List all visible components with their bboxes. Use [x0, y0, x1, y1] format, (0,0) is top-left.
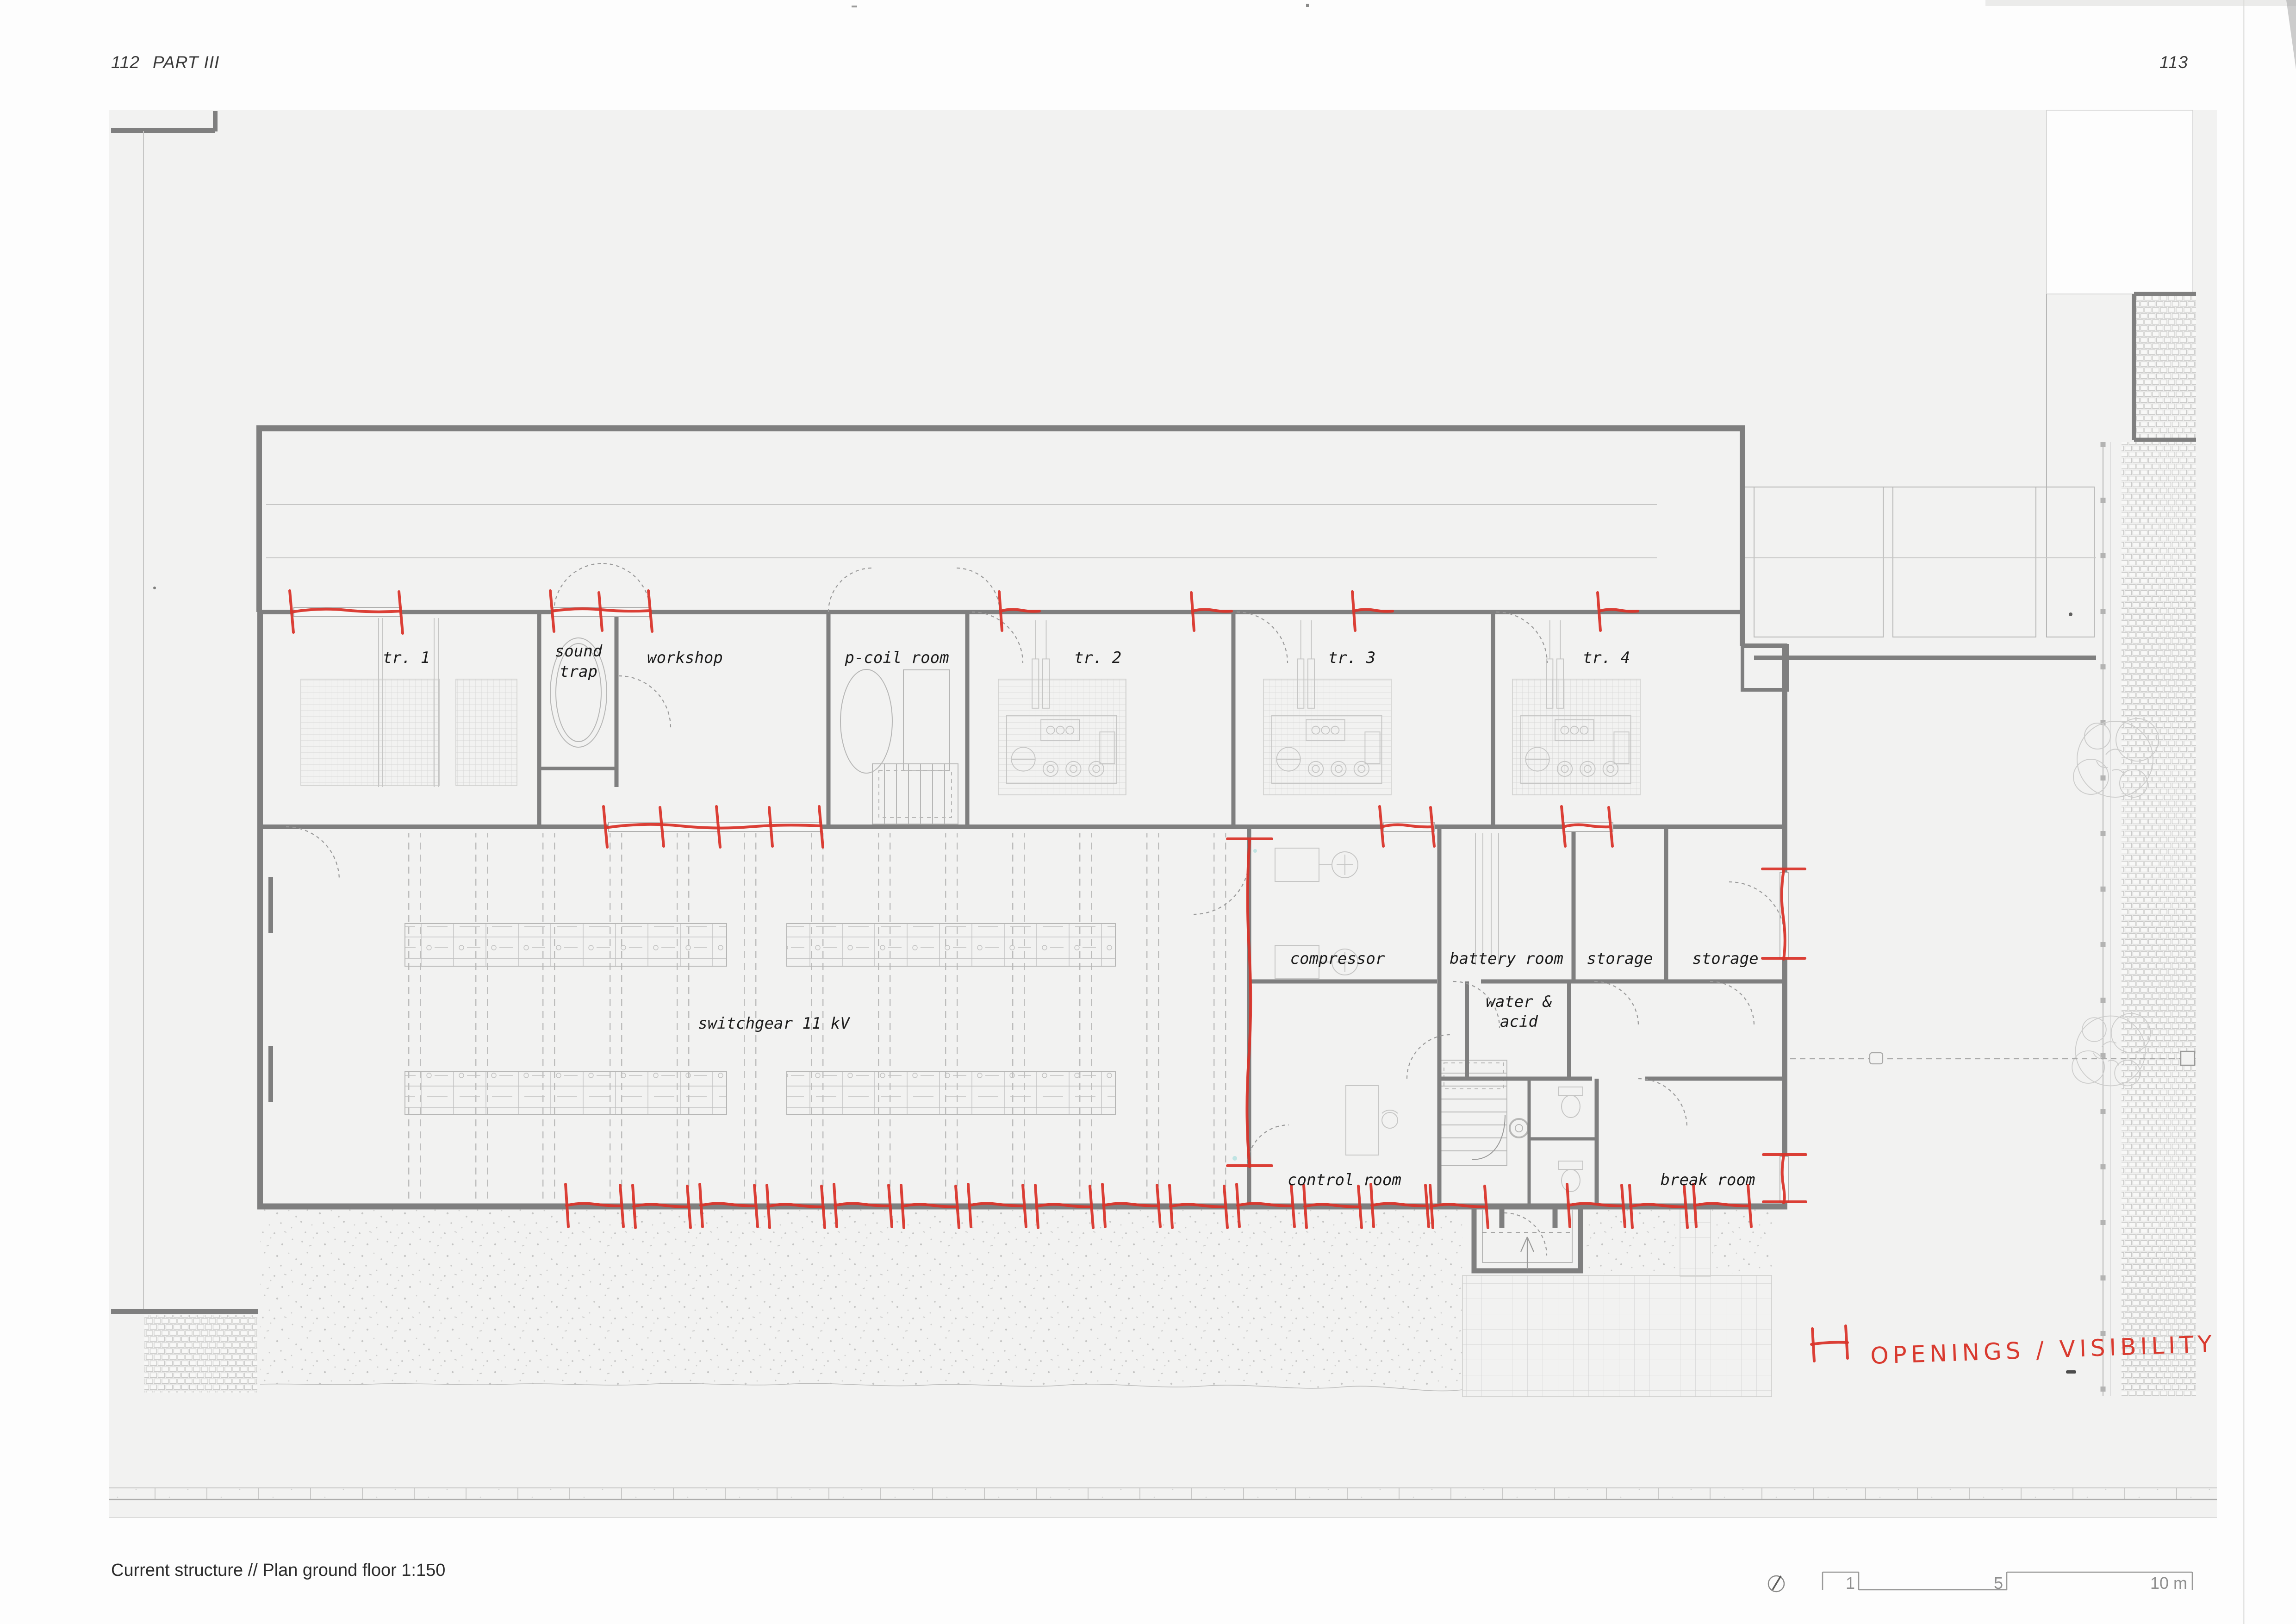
- room-label-workshop: workshop: [647, 649, 723, 667]
- room-label-sound-trap-2: trap: [560, 662, 597, 681]
- paving-top-right: [2134, 294, 2196, 440]
- ink-speck: [153, 587, 156, 589]
- gravel-patch: [1712, 1209, 1772, 1274]
- ink-speck: [2066, 1370, 2076, 1374]
- folio-right: 113: [2159, 53, 2188, 72]
- room-label-control: control room: [1288, 1171, 1401, 1189]
- scan-shadow: [1985, 0, 2296, 6]
- scale-bar: [1823, 1572, 2192, 1590]
- room-label-storage1: storage: [1587, 949, 1653, 968]
- gravel-area: [260, 1209, 1462, 1391]
- drawing-caption: Current structure // Plan ground floor 1…: [111, 1561, 445, 1580]
- ink-speck: [2069, 612, 2072, 616]
- room-label-tr3: tr. 3: [1328, 649, 1375, 667]
- scale-label-10m: 10 m: [2150, 1574, 2187, 1593]
- room-label-compressor: compressor: [1290, 949, 1385, 968]
- room-label-switchgear: switchgear 11 kV: [698, 1014, 850, 1033]
- compass-icon: [1768, 1576, 1784, 1592]
- room-label-tr4: tr. 4: [1583, 649, 1630, 667]
- folio-number: 112: [111, 53, 140, 72]
- paving-bottom-left: [144, 1315, 257, 1393]
- ink-speck: [852, 6, 857, 7]
- neighbor-parcel: [2047, 110, 2193, 294]
- scan-shadow-corner: [2286, 0, 2296, 69]
- room-label-battery: battery room: [1450, 949, 1563, 968]
- ink-speck: [1306, 4, 1309, 7]
- room-label-tr1: tr. 1: [383, 649, 430, 667]
- room-label-break: break room: [1661, 1171, 1755, 1189]
- tiled-plaza: [1462, 1275, 1772, 1397]
- room-label-pcoil: p-coil room: [844, 649, 949, 667]
- folio-left: 112PART III: [111, 53, 219, 72]
- room-label-tr2: tr. 2: [1074, 649, 1121, 667]
- scale-label-1: 1: [1846, 1574, 1855, 1593]
- part-title: PART III: [153, 53, 219, 72]
- room-label-storage2: storage: [1692, 949, 1758, 968]
- room-label-sound-trap-1: sound: [555, 642, 603, 661]
- scale-label-5: 5: [1994, 1574, 2003, 1593]
- room-label-water-1: water &: [1486, 993, 1552, 1011]
- book-page: OPENINGS / VISIBILITY tr. 1 sound trap w…: [0, 0, 2296, 1624]
- room-label-water-2: acid: [1500, 1012, 1538, 1031]
